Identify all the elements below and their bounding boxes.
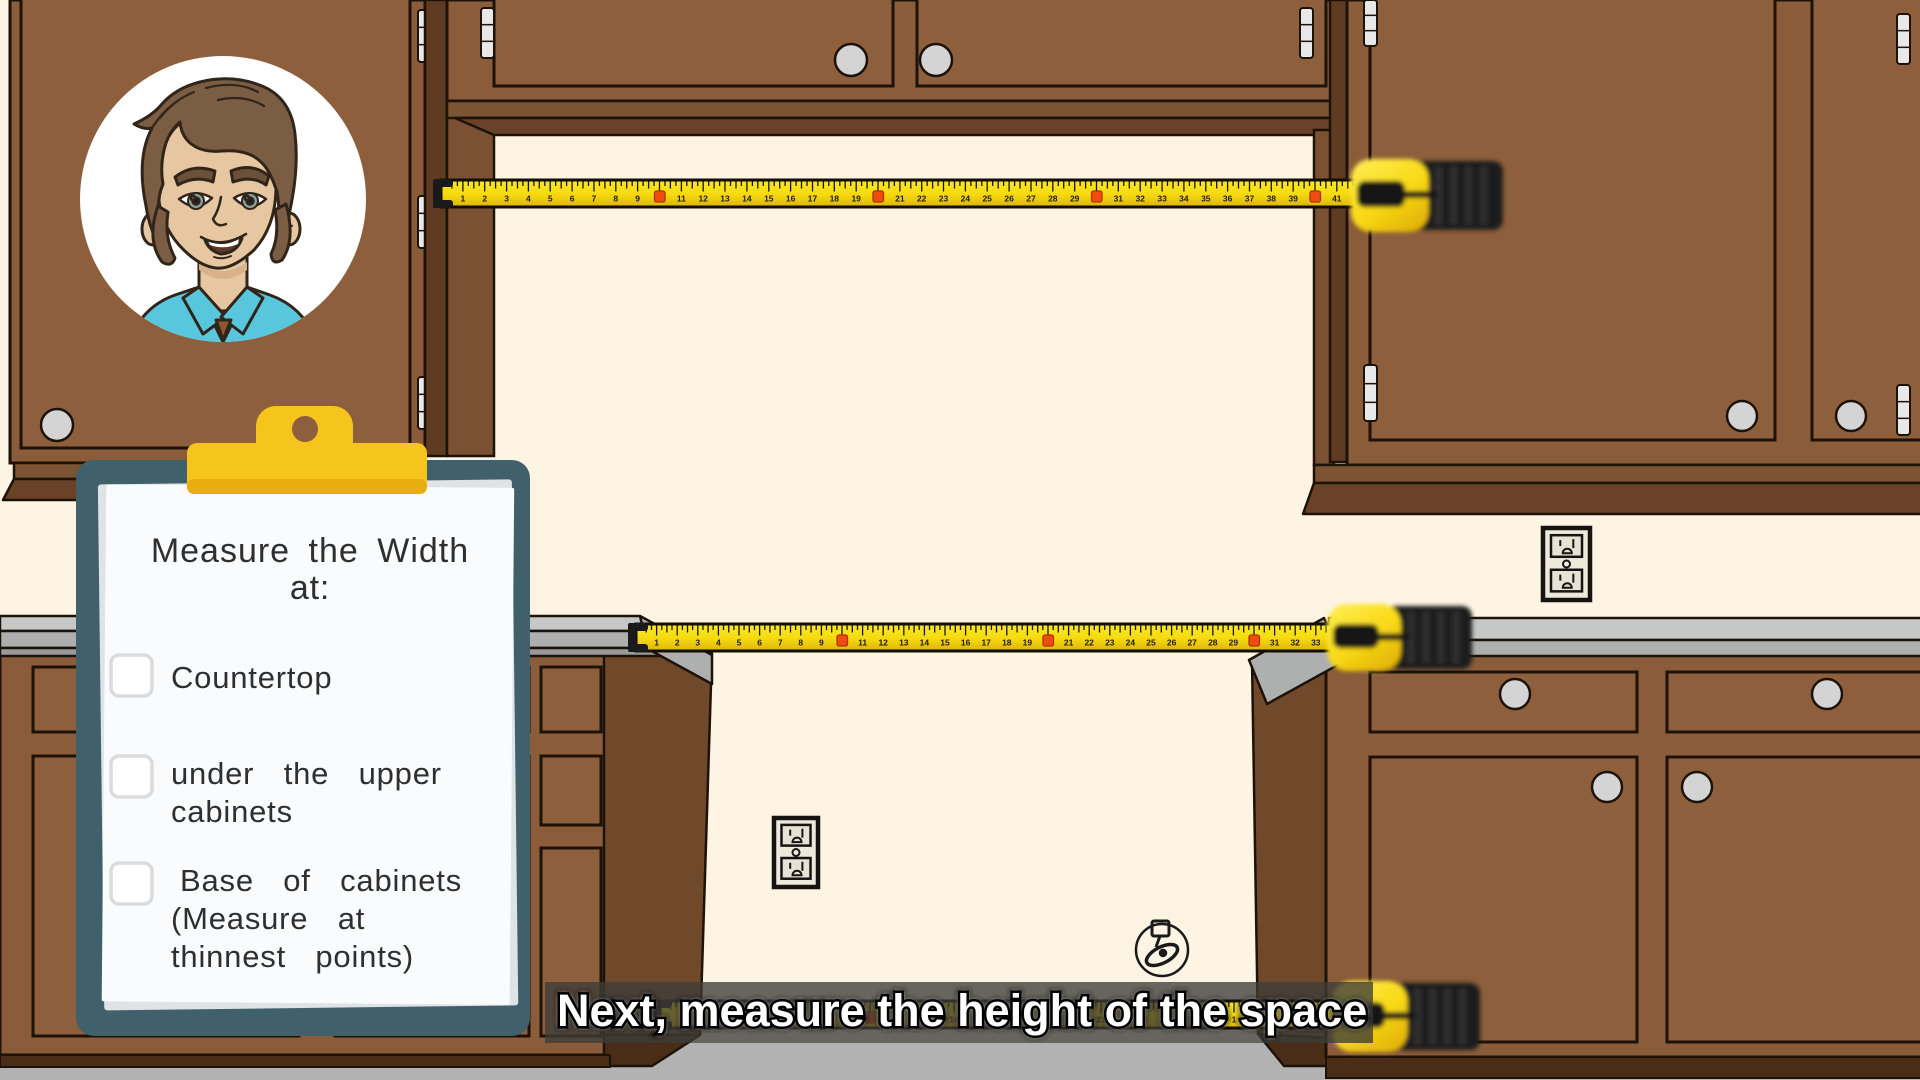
svg-text:17: 17 (808, 194, 818, 204)
svg-text:5: 5 (737, 638, 742, 648)
svg-text:36: 36 (1223, 194, 1233, 204)
svg-text:16: 16 (961, 638, 971, 648)
svg-text:29: 29 (1070, 194, 1080, 204)
svg-text:5: 5 (548, 194, 553, 204)
svg-text:12: 12 (878, 638, 888, 648)
svg-text:18: 18 (830, 194, 840, 204)
svg-text:14: 14 (742, 194, 752, 204)
svg-text:25: 25 (1146, 638, 1156, 648)
svg-text:32: 32 (1290, 638, 1300, 648)
svg-text:26: 26 (1004, 194, 1014, 204)
svg-text:26: 26 (1167, 638, 1177, 648)
svg-text:4: 4 (716, 638, 721, 648)
svg-text:35: 35 (1201, 194, 1211, 204)
svg-text:27: 27 (1026, 194, 1036, 204)
svg-text:Countertop: Countertop (171, 660, 332, 695)
svg-text:at:: at: (290, 569, 330, 607)
svg-text:41: 41 (1332, 194, 1342, 204)
svg-text:38: 38 (1267, 194, 1277, 204)
svg-text:17: 17 (981, 638, 991, 648)
svg-text:24: 24 (1126, 638, 1136, 648)
svg-text:13: 13 (720, 194, 730, 204)
svg-text:31: 31 (1270, 638, 1280, 648)
svg-text:19: 19 (851, 194, 861, 204)
svg-text:29: 29 (1229, 638, 1239, 648)
svg-text:34: 34 (1179, 194, 1189, 204)
svg-text:8: 8 (613, 194, 618, 204)
svg-text:19: 19 (1023, 638, 1033, 648)
svg-text:4: 4 (526, 194, 531, 204)
svg-text:(Measure at: (Measure at (171, 901, 365, 936)
svg-text:18: 18 (1002, 638, 1012, 648)
svg-text:28: 28 (1208, 638, 1218, 648)
svg-text:15: 15 (940, 638, 950, 648)
svg-text:33: 33 (1311, 638, 1321, 648)
svg-text:9: 9 (819, 638, 824, 648)
svg-text:32: 32 (1135, 194, 1145, 204)
svg-text:11: 11 (858, 638, 867, 648)
svg-text:6: 6 (757, 638, 762, 648)
svg-text:1: 1 (461, 194, 466, 204)
svg-text:31: 31 (1114, 194, 1124, 204)
svg-text:21: 21 (1064, 638, 1074, 648)
svg-text:6: 6 (570, 194, 575, 204)
svg-text:7: 7 (778, 638, 783, 648)
svg-text:Base of cabinets: Base of cabinets (180, 863, 462, 898)
svg-text:22: 22 (1084, 638, 1094, 648)
svg-text:2: 2 (482, 194, 487, 204)
svg-text:14: 14 (920, 638, 930, 648)
svg-text:7: 7 (592, 194, 597, 204)
svg-text:9: 9 (635, 194, 640, 204)
svg-text:23: 23 (939, 194, 949, 204)
svg-text:33: 33 (1157, 194, 1167, 204)
svg-text:cabinets: cabinets (171, 794, 293, 829)
svg-text:3: 3 (695, 638, 700, 648)
svg-text:thinnest points): thinnest points) (171, 939, 414, 974)
svg-text:25: 25 (982, 194, 992, 204)
svg-text:27: 27 (1187, 638, 1197, 648)
svg-text:3: 3 (504, 194, 509, 204)
svg-text:Measure the Width: Measure the Width (151, 532, 469, 570)
svg-text:8: 8 (798, 638, 803, 648)
svg-text:39: 39 (1288, 194, 1298, 204)
svg-text:13: 13 (899, 638, 909, 648)
svg-text:22: 22 (917, 194, 927, 204)
svg-text:24: 24 (961, 194, 971, 204)
svg-text:21: 21 (895, 194, 905, 204)
svg-text:16: 16 (786, 194, 796, 204)
svg-text:2: 2 (675, 638, 680, 648)
svg-text:11: 11 (677, 194, 686, 204)
svg-text:23: 23 (1105, 638, 1115, 648)
svg-text:under the upper: under the upper (171, 756, 442, 791)
svg-text:28: 28 (1048, 194, 1058, 204)
svg-text:37: 37 (1245, 194, 1255, 204)
svg-text:Next, measure the height of th: Next, measure the height of the space (557, 985, 1367, 1036)
svg-text:15: 15 (764, 194, 774, 204)
svg-text:12: 12 (698, 194, 708, 204)
svg-text:1: 1 (654, 638, 659, 648)
